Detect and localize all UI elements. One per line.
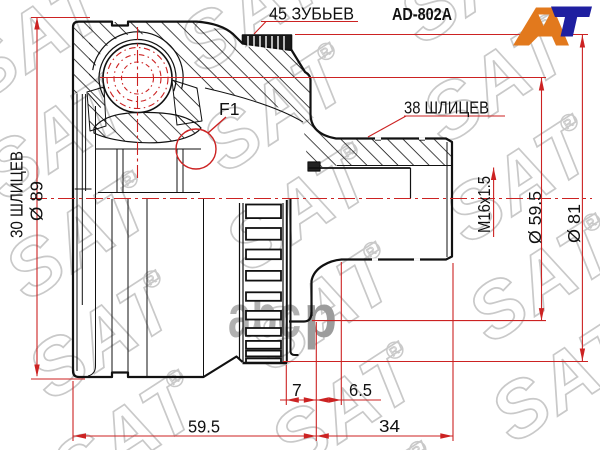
svg-text:p: p <box>304 283 337 350</box>
svg-text:6.5: 6.5 <box>349 380 372 400</box>
svg-text:Ø 89: Ø 89 <box>27 181 47 221</box>
svg-text:34: 34 <box>379 416 400 436</box>
svg-text:M16x1.5: M16x1.5 <box>474 176 494 233</box>
svg-text:59.5: 59.5 <box>188 417 220 437</box>
svg-text:45 ЗУБЬЕВ: 45 ЗУБЬЕВ <box>269 4 354 24</box>
svg-text:Ø 81: Ø 81 <box>564 204 584 243</box>
svg-text:30 ШЛИЦЕВ: 30 ШЛИЦЕВ <box>7 151 27 238</box>
svg-text:AD-802A: AD-802A <box>392 4 452 24</box>
svg-text:38 ШЛИЦЕВ: 38 ШЛИЦЕВ <box>404 98 489 118</box>
svg-text:7: 7 <box>292 380 302 400</box>
svg-text:Ø 59.5: Ø 59.5 <box>525 191 545 244</box>
svg-text:F1: F1 <box>219 99 239 119</box>
